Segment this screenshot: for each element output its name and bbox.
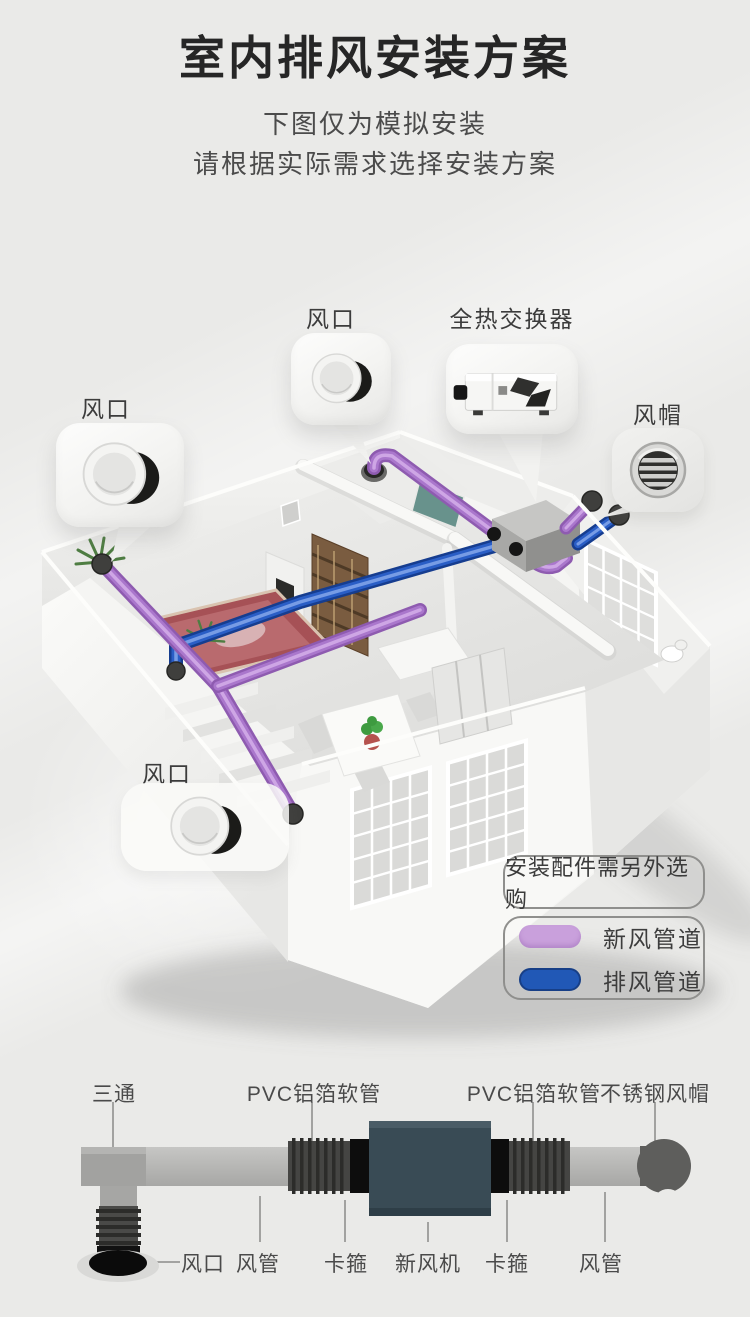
flex-hose: [509, 1138, 570, 1194]
house-illustration: [0, 0, 750, 1317]
callout-card-windcap: [612, 428, 704, 512]
legend-note-box: 安装配件需另外选购: [503, 855, 705, 909]
vertical-hose: [96, 1206, 141, 1250]
legend-item-exhaust: 排风管道: [519, 963, 703, 997]
infographic-page: 室内排风安装方案 下图仅为模拟安装 请根据实际需求选择安装方案: [0, 0, 750, 1317]
part-label-pvc-hose-right: PVC铝箔软管: [467, 1078, 601, 1108]
clamp: [491, 1139, 509, 1193]
duct-pipe: [570, 1147, 640, 1186]
vent-photo: [150, 788, 260, 866]
callout-card-outlet-bottom: [121, 783, 289, 871]
stainless-wind-cap: [637, 1139, 691, 1219]
part-label-pvc-hose-left: PVC铝箔软管: [247, 1078, 381, 1108]
part-label-clamp-right: 卡箍: [485, 1248, 529, 1278]
fresh-air-duct-swatch: [519, 925, 581, 948]
legend-item-label: 新风管道: [603, 920, 703, 954]
duct-pipe: [146, 1147, 288, 1186]
heat-exchanger-photo: [453, 354, 571, 424]
callout-card-outlet-top: [291, 333, 391, 425]
clamp: [350, 1139, 369, 1193]
legend-item-fresh-air: 新风管道: [519, 920, 703, 954]
callout-label-outlet-top: 风口: [306, 300, 356, 334]
callout-card-outlet-left: [56, 423, 184, 527]
part-label-duct-left: 风管: [236, 1248, 280, 1278]
legend-box: 新风管道 排风管道: [503, 916, 705, 1000]
vent-photo: [304, 346, 378, 412]
vent-photo: [72, 433, 168, 517]
legend-note: 安装配件需另外选购: [505, 850, 703, 914]
fresh-air-machine: [369, 1121, 491, 1216]
exhaust-duct-swatch: [519, 968, 581, 991]
part-label-clamp-left: 卡箍: [324, 1248, 368, 1278]
tee-fitting: [81, 1147, 146, 1208]
part-label-machine: 新风机: [395, 1248, 461, 1278]
part-label-duct-right: 风管: [579, 1248, 623, 1278]
flex-hose: [288, 1138, 350, 1194]
part-label-tee: 三通: [92, 1078, 136, 1108]
wind-cap-photo: [623, 437, 693, 503]
part-label-vent: 风口: [181, 1248, 225, 1278]
callout-card-exchanger: [446, 344, 578, 434]
round-vent: [77, 1246, 159, 1282]
legend-item-label: 排风管道: [603, 963, 703, 997]
part-label-stainless-cap: 不锈钢风帽: [600, 1078, 710, 1108]
callout-label-windcap: 风帽: [633, 396, 683, 430]
callout-label-exchanger: 全热交换器: [450, 300, 575, 334]
callout-label-outlet-left: 风口: [81, 390, 131, 424]
